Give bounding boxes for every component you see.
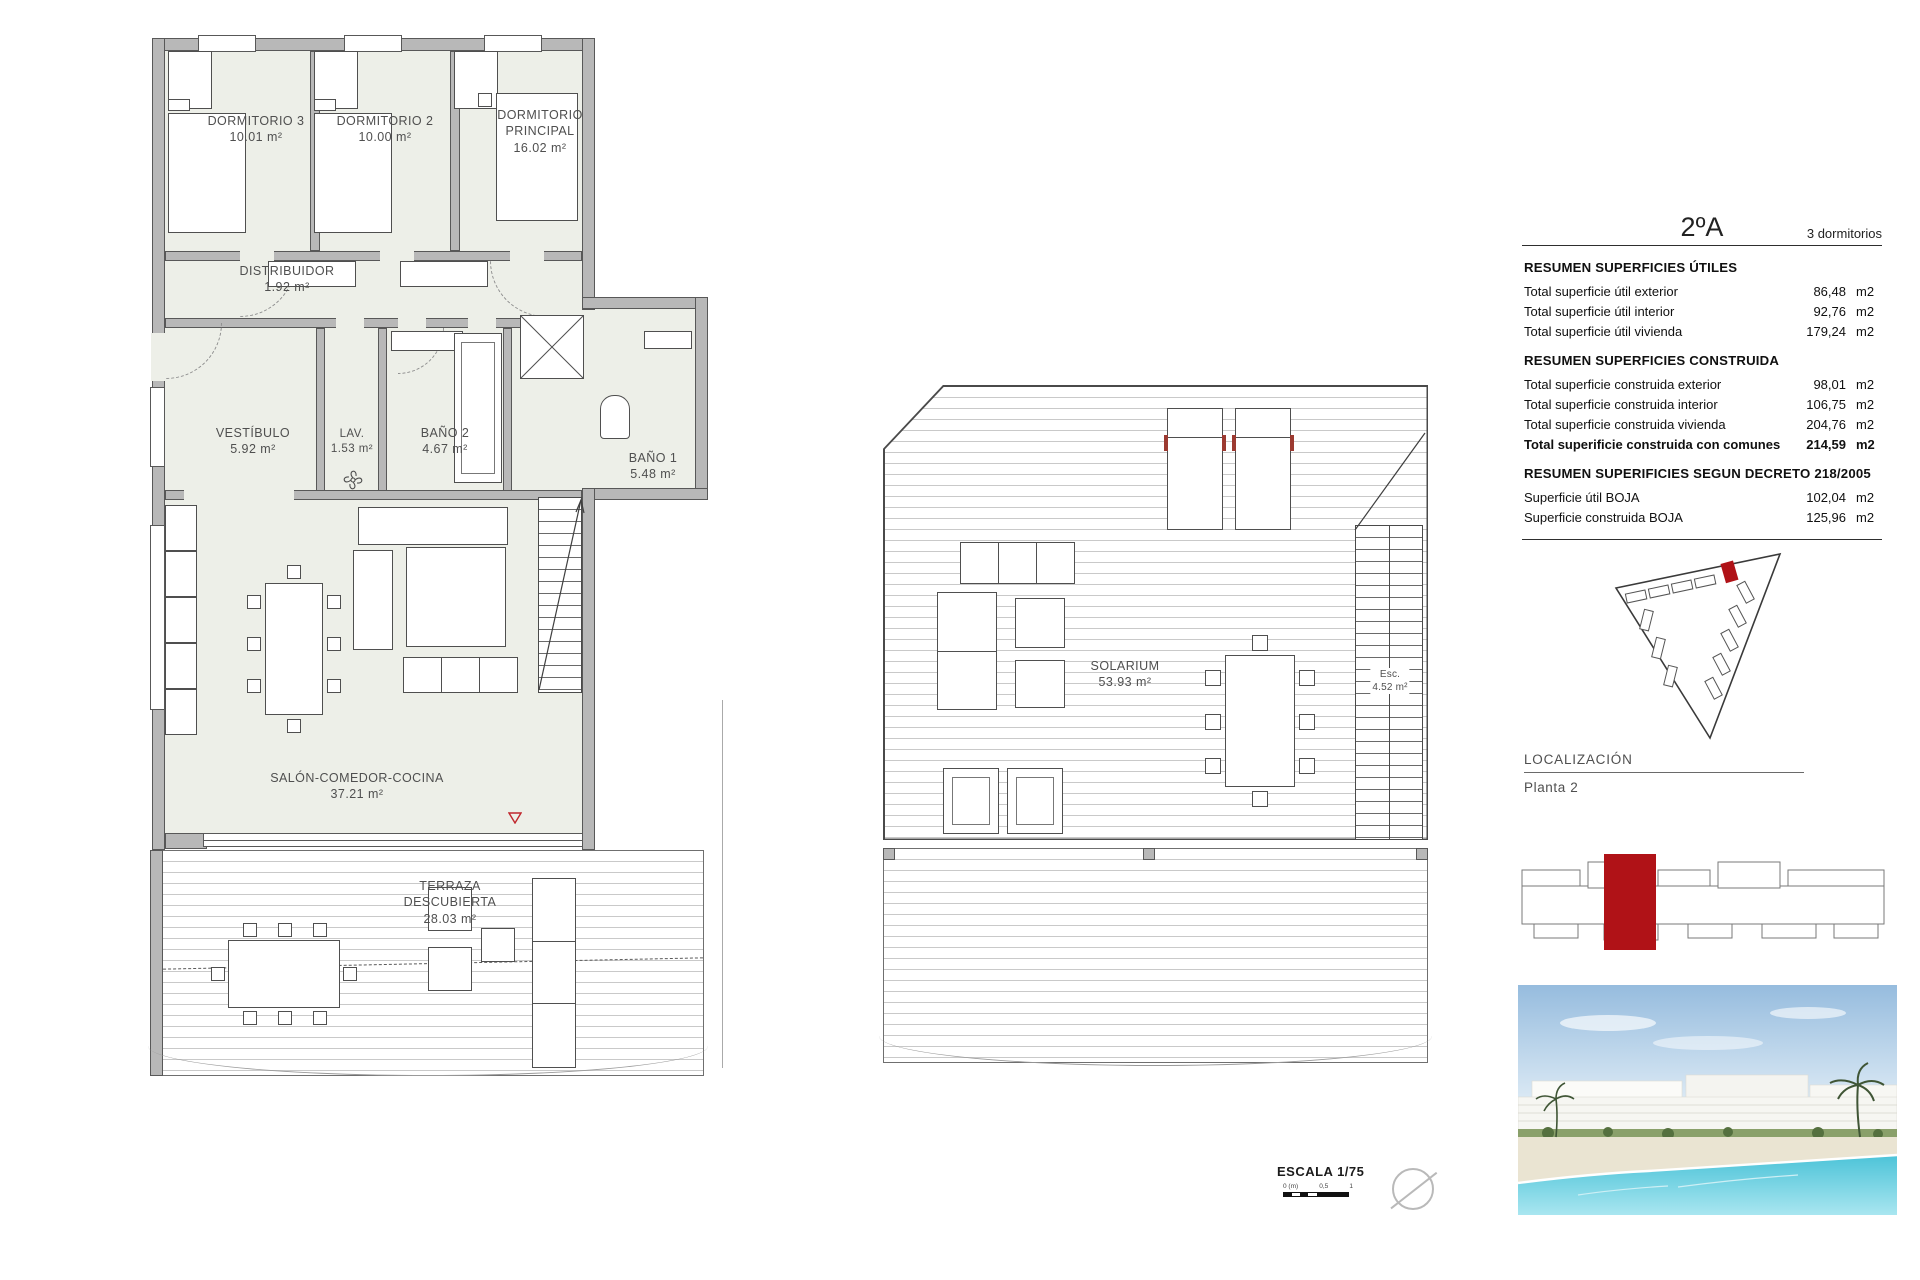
sun-lounger	[1167, 408, 1223, 530]
entrance-marker-icon	[508, 812, 522, 824]
stairs-direction-line	[533, 490, 588, 700]
room-name: VESTÍBULO	[216, 425, 290, 441]
row-value: 125,96	[1794, 510, 1846, 525]
room-area: 53.93 m²	[1091, 674, 1160, 690]
room-label-terraza: TERRAZA DESCUBIERTA 28.03 m²	[394, 878, 506, 927]
row-label: Total superficie construida vivienda	[1524, 417, 1794, 432]
room-label-lavadero: LAV. 1.53 m²	[331, 427, 373, 457]
chair	[1299, 758, 1315, 774]
room-name: SALÓN-COMEDOR-COCINA	[270, 770, 444, 786]
site-plan-key-diagram	[1598, 548, 1798, 743]
row-value: 179,24	[1794, 324, 1846, 339]
bathroom-vanity	[391, 331, 463, 351]
armchair	[943, 768, 999, 834]
kitchen-cabinet	[165, 551, 197, 597]
nightstand	[314, 99, 336, 111]
section-title-decreto: RESUMEN SUPERIFICIES SEGUN DECRETO 218/2…	[1524, 466, 1882, 481]
room-area: 1.53 m²	[331, 442, 373, 457]
surface-row: Total superficie construida vivienda 204…	[1522, 417, 1882, 432]
room-label-dormitorio-principal: DORMITORIO PRINCIPAL 16.02 m²	[492, 107, 588, 156]
shower	[520, 315, 584, 379]
chair	[247, 637, 261, 651]
outdoor-sofa	[960, 542, 1075, 584]
hall-wardrobe	[400, 261, 488, 287]
row-unit: m2	[1846, 397, 1882, 412]
bathroom-sink	[644, 331, 692, 349]
highlighted-unit-block	[1604, 854, 1656, 950]
room-area: 4.67 m²	[421, 441, 470, 457]
chair	[278, 1011, 292, 1025]
chair	[211, 967, 225, 981]
surface-row: Total superficie construida exterior 98,…	[1522, 377, 1882, 392]
section-title-utiles: RESUMEN SUPERFICIES ÚTILES	[1524, 260, 1882, 275]
sofa-divider	[533, 941, 575, 942]
nightstand	[168, 99, 190, 111]
nightstand	[478, 93, 492, 107]
door-opening	[468, 317, 496, 329]
room-area: 1.92 m²	[240, 279, 335, 295]
room-label-bano-1: BAÑO 1 5.48 m²	[629, 450, 678, 483]
room-name: DISTRIBUIDOR	[240, 263, 335, 279]
surface-row-total: Total superificie construida con comunes…	[1522, 437, 1882, 452]
sofa-divider	[533, 1003, 575, 1004]
room-label-solarium: SOLARIUM 53.93 m²	[1091, 658, 1160, 691]
chair	[287, 719, 301, 733]
console-divider	[441, 658, 442, 692]
chair	[243, 923, 257, 937]
chair	[247, 679, 261, 693]
lounger-armrest	[1164, 435, 1168, 451]
door-opening	[336, 317, 364, 329]
room-name: TERRAZA DESCUBIERTA	[394, 878, 506, 911]
chair	[327, 637, 341, 651]
sofa-chaise	[353, 550, 393, 650]
row-value: 204,76	[1794, 417, 1846, 432]
panel-bottom-rule	[1522, 539, 1882, 540]
outdoor-sofa	[937, 592, 997, 710]
room-name: SOLARIUM	[1091, 658, 1160, 674]
chair	[287, 565, 301, 579]
chair	[1205, 758, 1221, 774]
shower-cross-icon	[521, 316, 583, 378]
surface-row: Total superficie útil interior 92,76 m2	[1522, 304, 1882, 319]
north-compass-icon	[1392, 1168, 1434, 1210]
surface-row: Superficie construida BOJA 125,96 m2	[1522, 510, 1882, 525]
chair	[278, 923, 292, 937]
kitchen-cabinet	[165, 643, 197, 689]
wall-segment	[582, 297, 708, 309]
door-opening	[184, 489, 294, 501]
chair	[327, 595, 341, 609]
room-name: DORMITORIO 2	[337, 113, 434, 129]
room-name: Esc.	[1372, 668, 1407, 681]
apartment-floor-plan: DORMITORIO 3 10.01 m² DORMITORIO 2 10.00…	[148, 35, 728, 1085]
surface-row: Superficie útil BOJA 102,04 m2	[1522, 490, 1882, 505]
lounger-fold-line	[1236, 437, 1290, 438]
lounger-armrest	[1290, 435, 1294, 451]
row-unit: m2	[1846, 437, 1882, 452]
column-stub	[1143, 848, 1155, 860]
row-label: Superficie útil BOJA	[1524, 490, 1794, 505]
wall-segment	[582, 488, 708, 500]
sliding-glass-doors	[203, 833, 583, 847]
room-name: DORMITORIO 3	[208, 113, 305, 129]
chair	[1205, 714, 1221, 730]
row-unit: m2	[1846, 324, 1882, 339]
side-table	[1015, 598, 1065, 648]
row-label: Total superficie útil vivienda	[1524, 324, 1794, 339]
chair	[1299, 714, 1315, 730]
column-stub	[1416, 848, 1428, 860]
room-label-dormitorio-2: DORMITORIO 2 10.00 m²	[337, 113, 434, 146]
localization-title: LOCALIZACIÓN	[1524, 752, 1804, 773]
sofa-divider	[998, 543, 999, 583]
row-value: 106,75	[1794, 397, 1846, 412]
row-value: 92,76	[1794, 304, 1846, 319]
room-label-dormitorio-3: DORMITORIO 3 10.01 m²	[208, 113, 305, 146]
room-area: 16.02 m²	[492, 140, 588, 156]
tick-one: 1	[1349, 1183, 1353, 1190]
tick-zero: 0 (m)	[1283, 1183, 1298, 1190]
chair	[1252, 635, 1268, 651]
localization-floor: Planta 2	[1524, 773, 1804, 795]
row-label: Total superificie construida con comunes	[1524, 437, 1794, 452]
chair	[343, 967, 357, 981]
chair	[313, 923, 327, 937]
room-area: 28.03 m²	[394, 911, 506, 927]
room-name: BAÑO 2	[421, 425, 470, 441]
room-area: 4.52 m²	[1372, 681, 1407, 694]
chair	[1252, 791, 1268, 807]
window	[150, 525, 165, 710]
chair	[313, 1011, 327, 1025]
room-name: BAÑO 1	[629, 450, 678, 466]
lower-terrace-deck	[883, 848, 1428, 1063]
armchair	[428, 947, 472, 991]
tv-console	[403, 657, 518, 693]
room-area: 10.01 m²	[208, 129, 305, 145]
row-label: Total superficie construida interior	[1524, 397, 1794, 412]
sofa-divider	[1036, 543, 1037, 583]
solarium-floor-plan: SOLARIUM 53.93 m² Esc. 4.52 m²	[875, 370, 1440, 1110]
tick-half: 0,5	[1319, 1183, 1328, 1190]
section-title-construida: RESUMEN SUPERFICIES CONSTRUIDA	[1524, 353, 1882, 368]
surface-row: Total superficie útil exterior 86,48 m2	[1522, 284, 1882, 299]
wall-segment	[503, 328, 512, 493]
room-area: 10.00 m²	[337, 129, 434, 145]
window	[344, 35, 402, 52]
chair	[327, 679, 341, 693]
coffee-table	[406, 547, 506, 647]
kitchen-cabinet	[165, 597, 197, 643]
room-label-salon: SALÓN-COMEDOR-COCINA 37.21 m²	[270, 770, 444, 803]
lounger-armrest	[1232, 435, 1236, 451]
floor-plan-sheet: { "plan_a": { "rooms": [ {"name": "DORMI…	[0, 0, 1920, 1280]
dining-table	[265, 583, 323, 715]
kitchen-cabinet	[165, 505, 197, 551]
wall-segment	[378, 328, 387, 493]
wall-segment	[582, 38, 595, 310]
row-value: 86,48	[1794, 284, 1846, 299]
armchair-cushion	[952, 777, 990, 825]
panel-header: 2ºA 3 dormitorios	[1522, 198, 1882, 246]
window	[150, 387, 165, 467]
row-unit: m2	[1846, 304, 1882, 319]
row-value: 98,01	[1794, 377, 1846, 392]
console-divider	[479, 658, 480, 692]
row-unit: m2	[1846, 417, 1882, 432]
sofa	[358, 507, 508, 545]
side-table	[1015, 660, 1065, 708]
extractor-fan-icon	[338, 465, 368, 495]
room-label-distribuidor: DISTRIBUIDOR 1.92 m²	[240, 263, 335, 296]
localization-block: LOCALIZACIÓN Planta 2	[1524, 752, 1804, 795]
side-table	[481, 928, 515, 962]
chair	[247, 595, 261, 609]
row-label: Total superficie útil interior	[1524, 304, 1794, 319]
row-unit: m2	[1846, 377, 1882, 392]
surface-summary-panel: 2ºA 3 dormitorios RESUMEN SUPERFICIES ÚT…	[1522, 198, 1882, 540]
row-value: 214,59	[1794, 437, 1846, 452]
surface-row: Total superficie útil vivienda 179,24 m2	[1522, 324, 1882, 339]
room-name: DORMITORIO PRINCIPAL	[492, 107, 588, 140]
entry-door-opening	[151, 333, 166, 381]
scale-ruler-ticks: 0 (m) 0,5 1	[1283, 1183, 1353, 1190]
wall-segment	[165, 833, 207, 849]
chair	[243, 1011, 257, 1025]
chair	[1299, 670, 1315, 686]
room-name: LAV.	[331, 427, 373, 442]
toilet	[600, 395, 630, 439]
room-label-vestibulo: VESTÍBULO 5.92 m²	[216, 425, 290, 458]
scale-ruler-bar	[1283, 1192, 1349, 1197]
wall-segment	[695, 297, 708, 500]
room-label-escalera: Esc. 4.52 m²	[1370, 668, 1409, 694]
project-render-photo	[1518, 985, 1897, 1215]
room-area: 37.21 m²	[270, 786, 444, 802]
armchair	[1007, 768, 1063, 834]
kitchen-cabinet	[165, 689, 197, 735]
surface-row: Total superficie construida interior 106…	[1522, 397, 1882, 412]
building-position-diagram	[1518, 848, 1890, 960]
wall-segment	[316, 328, 325, 493]
sofa-divider	[938, 651, 996, 652]
row-unit: m2	[1846, 510, 1882, 525]
unit-type: 3 dormitorios	[1807, 226, 1882, 241]
row-label: Superficie construida BOJA	[1524, 510, 1794, 525]
window	[484, 35, 542, 52]
row-value: 102,04	[1794, 490, 1846, 505]
lounger-fold-line	[1168, 437, 1222, 438]
lounger-armrest	[1222, 435, 1226, 451]
scale-label: ESCALA 1/75	[1277, 1164, 1364, 1179]
bathtub	[454, 333, 502, 483]
room-area: 5.48 m²	[629, 466, 678, 482]
room-label-bano-2: BAÑO 2 4.67 m²	[421, 425, 470, 458]
sun-lounger	[1235, 408, 1291, 530]
row-label: Total superficie construida exterior	[1524, 377, 1794, 392]
chair	[1205, 670, 1221, 686]
compass-needle	[1391, 1172, 1438, 1209]
row-unit: m2	[1846, 490, 1882, 505]
room-area: 5.92 m²	[216, 441, 290, 457]
plot-boundary-line	[722, 700, 723, 1068]
window	[198, 35, 256, 52]
column-stub	[883, 848, 895, 860]
row-unit: m2	[1846, 284, 1882, 299]
dining-table	[1225, 655, 1295, 787]
glass-door-line	[204, 840, 582, 841]
stair-landing-line	[1345, 425, 1430, 535]
terrace-dining-table	[228, 940, 340, 1008]
armchair-cushion	[1016, 777, 1054, 825]
row-label: Total superficie útil exterior	[1524, 284, 1794, 299]
